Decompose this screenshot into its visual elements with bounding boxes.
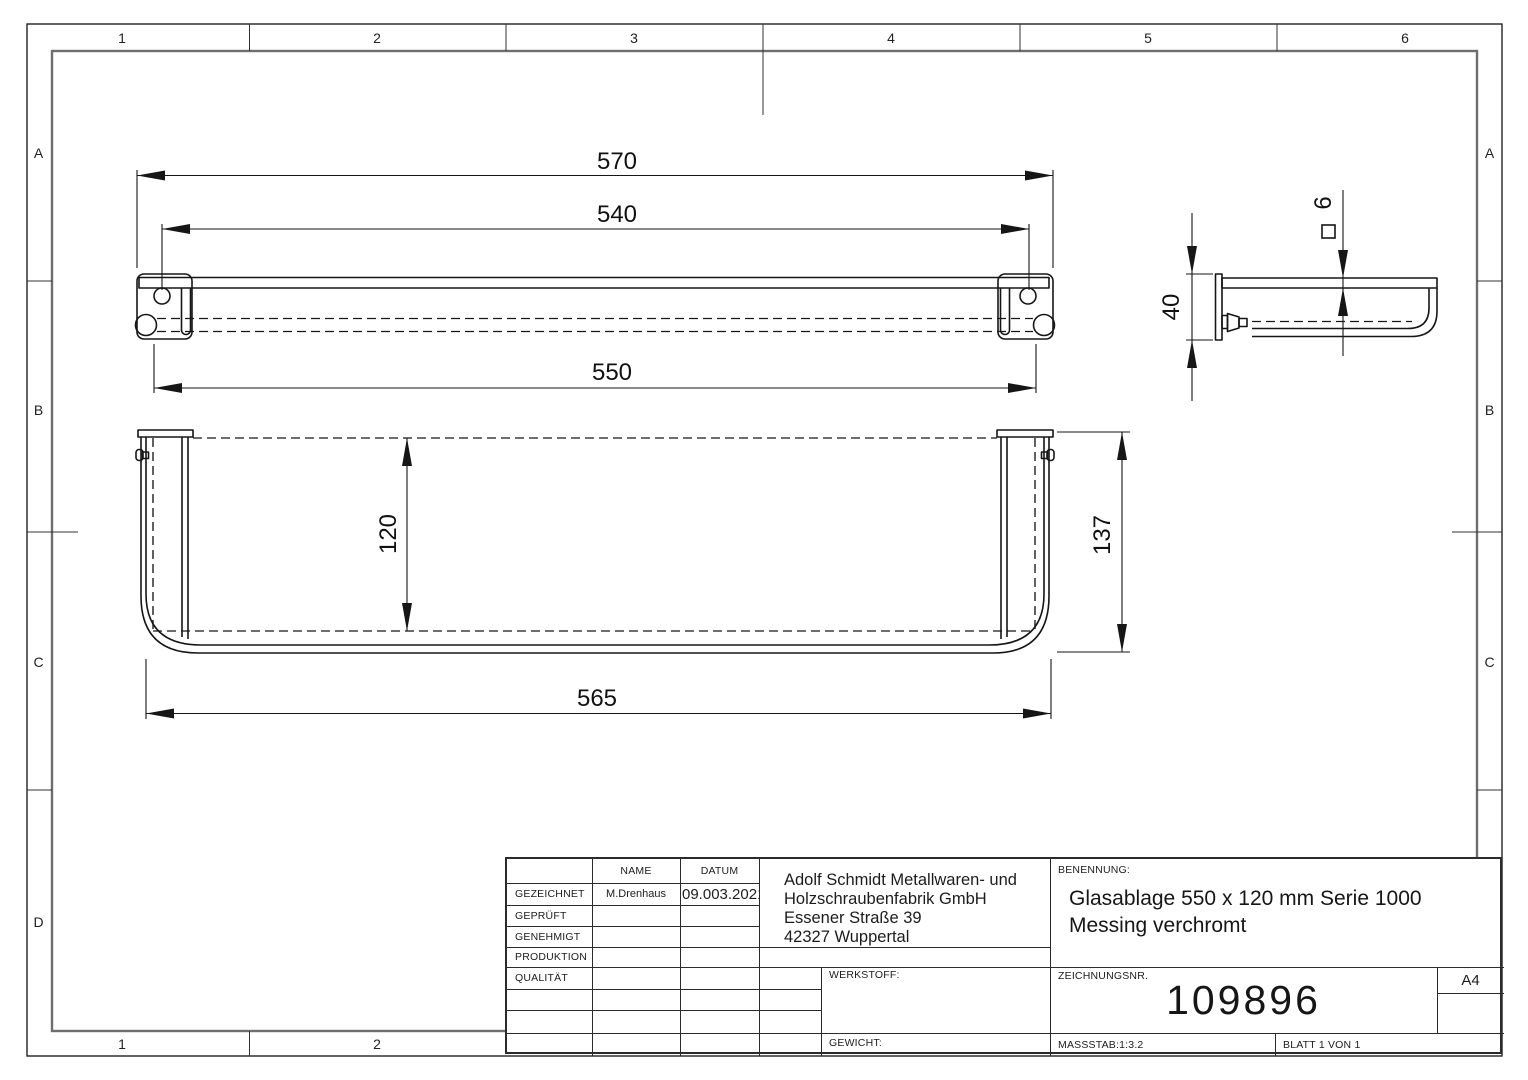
dim-40: 40 xyxy=(1158,213,1213,401)
tb-row-gezeichnet: GEZEICHNET xyxy=(507,883,592,905)
dim-6: 6 xyxy=(1310,190,1348,356)
right-zone-separators xyxy=(1477,281,1502,790)
tb-gezeichnet-name: M.Drenhaus xyxy=(592,883,680,905)
top-zone-separators xyxy=(250,24,1278,51)
front-right-bracket-slot xyxy=(1001,288,1010,335)
plan-rail-inner xyxy=(146,437,1044,645)
dim-540-value: 540 xyxy=(597,201,637,228)
zone-row-b-right: B xyxy=(1485,402,1494,418)
tb-line xyxy=(507,1010,821,1011)
square-section-symbol xyxy=(1322,225,1335,238)
dim-137: 137 xyxy=(1057,432,1130,652)
front-left-bracket-slot xyxy=(182,288,191,335)
sheet-format: A4 xyxy=(1437,967,1504,993)
zone-row-c-left: C xyxy=(33,654,43,670)
zone-row-a-left: A xyxy=(34,145,44,161)
dim-565: 565 xyxy=(146,659,1051,719)
tb-massstab: MASSSTAB:1:3.2 xyxy=(1050,1036,1270,1054)
centering-marks xyxy=(52,51,1477,532)
tb-gezeichnet-date: 09.003.2021 xyxy=(680,883,759,905)
front-right-bracket xyxy=(998,274,1053,339)
plan-view: 120 137 565 xyxy=(136,430,1130,719)
zone-row-b-left: B xyxy=(34,402,43,418)
zone-col-4: 4 xyxy=(887,30,895,46)
part-designation: Glasablage 550 x 120 mm Serie 1000 Messi… xyxy=(1069,885,1422,939)
designation-line-2: Messing verchromt xyxy=(1069,912,1422,939)
side-glass-panel xyxy=(1222,278,1437,288)
dim-570-value: 570 xyxy=(597,148,637,175)
zone-col-3: 3 xyxy=(630,30,638,46)
tb-row-qualitaet: QUALITÄT xyxy=(507,967,592,989)
side-wall-plate xyxy=(1216,274,1223,340)
tb-line xyxy=(507,989,821,990)
dim-6-value: 6 xyxy=(1310,196,1337,209)
company-line: Essener Straße 39 xyxy=(784,909,1017,928)
dim-40-value: 40 xyxy=(1158,294,1185,321)
tb-row-genehmigt: GENEHMIGT xyxy=(507,926,592,947)
tb-header-datum: DATUM xyxy=(680,859,759,883)
tb-line xyxy=(759,859,760,1056)
plan-right-wall-plate xyxy=(997,430,1053,437)
tb-row-geprueft: GEPRÜFT xyxy=(507,905,592,926)
zone-row-c-right: C xyxy=(1484,654,1494,670)
plan-hidden-glass xyxy=(153,438,1035,631)
plan-rail-outer xyxy=(141,437,1049,653)
tb-gewicht-label: GEWICHT: xyxy=(821,1035,981,1051)
front-rail-left-end xyxy=(136,315,157,336)
company-line: 42327 Wuppertal xyxy=(784,928,1017,947)
company-address: Adolf Schmidt Metallwaren- und Holzschra… xyxy=(784,871,1017,947)
front-hidden-rail xyxy=(157,319,1033,332)
tb-werkstoff-label: WERKSTOFF: xyxy=(821,967,981,983)
zone-row-d-left: D xyxy=(33,914,43,930)
dim-540: 540 xyxy=(162,201,1029,290)
zone-col-2: 2 xyxy=(373,30,381,46)
dim-565-value: 565 xyxy=(577,685,617,712)
side-view: 40 6 xyxy=(1158,190,1437,401)
zone-col-6: 6 xyxy=(1401,30,1409,46)
company-line: Adolf Schmidt Metallwaren- und xyxy=(784,871,1017,890)
front-rail-right-end xyxy=(1034,315,1055,336)
front-right-screw-hole xyxy=(1020,288,1036,304)
front-view: 570 540 550 xyxy=(136,148,1055,393)
title-block: NAME DATUM GEZEICHNET M.Drenhaus 09.003.… xyxy=(505,857,1502,1054)
tb-benennung-label: BENENNUNG: xyxy=(1050,863,1250,877)
plan-bracket-legs xyxy=(182,437,1007,639)
zone-row-a-right: A xyxy=(1485,145,1495,161)
zone-col-1: 1 xyxy=(118,30,126,46)
dim-137-value: 137 xyxy=(1089,515,1116,555)
front-left-bracket xyxy=(137,274,192,339)
dim-550-value: 550 xyxy=(592,359,632,386)
side-mount-screw xyxy=(1222,314,1247,332)
tb-blatt: BLATT 1 VON 1 xyxy=(1275,1036,1500,1054)
front-left-screw-hole xyxy=(154,288,170,304)
dim-550: 550 xyxy=(154,344,1036,393)
dim-120-value: 120 xyxy=(375,514,402,554)
company-line: Holzschraubenfabrik GmbH xyxy=(784,890,1017,909)
tb-line xyxy=(507,1033,1504,1034)
tb-header-name: NAME xyxy=(592,859,680,883)
plan-left-wall-plate xyxy=(138,430,193,437)
tb-row-produktion: PRODUKTION xyxy=(507,947,592,967)
dim-570: 570 xyxy=(137,148,1053,268)
tb-line xyxy=(1437,993,1504,994)
designation-line-1: Glasablage 550 x 120 mm Serie 1000 xyxy=(1069,885,1422,912)
left-zone-separators xyxy=(27,281,52,790)
dim-120: 120 xyxy=(375,438,412,631)
drawing-sheet: 1 2 3 4 5 6 1 2 A B C D A B C 570 xyxy=(0,0,1528,1080)
front-glass-panel xyxy=(139,278,1049,289)
drawing-number: 109896 xyxy=(1050,967,1437,1033)
zone-col-5: 5 xyxy=(1144,30,1152,46)
zone-col-2-bottom: 2 xyxy=(373,1036,381,1052)
zone-col-1-bottom: 1 xyxy=(118,1036,126,1052)
